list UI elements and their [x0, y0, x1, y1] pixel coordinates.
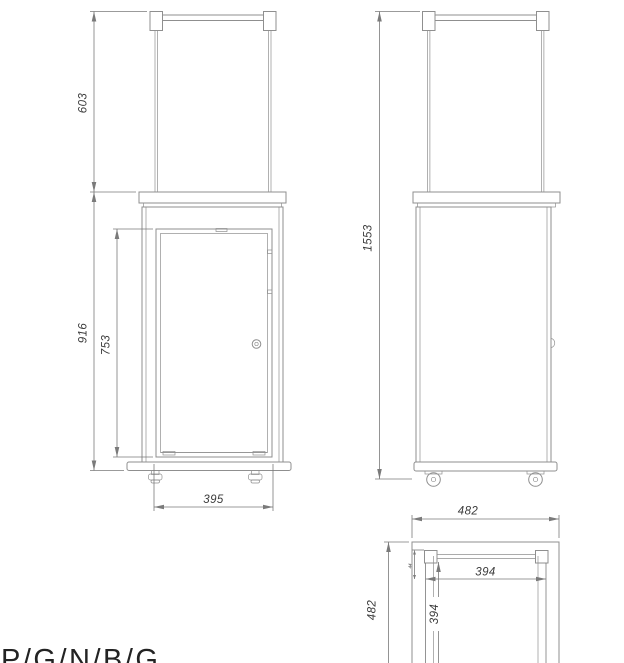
dim-top-overall-depth: 482: [367, 542, 410, 663]
top-view: 482 482 394 394 44: [367, 506, 560, 663]
front-door-hinge-mid: [268, 290, 273, 294]
front-foot-right: [249, 471, 263, 484]
side-handle-rod-right: [542, 31, 544, 193]
side-base-plate: [414, 462, 557, 471]
front-door-glass: [161, 234, 268, 453]
dim-front-door-width: 395: [154, 464, 273, 511]
front-door-hinge-top: [268, 250, 273, 254]
front-view: 603 916 753 395: [78, 12, 292, 512]
front-handle-cap-right: [264, 12, 277, 31]
front-handle-rod-right: [269, 31, 271, 193]
front-top-cap: [139, 192, 286, 203]
dim-top-handle-span-depth: 394: [429, 562, 444, 663]
dim-label-394-horizontal: 394: [475, 567, 495, 579]
side-view: 1553: [363, 12, 561, 487]
front-body: [142, 207, 283, 462]
dim-top-handle-span-width: 394: [426, 563, 547, 663]
side-handle-bar: [435, 15, 537, 21]
dim-front-door-height: 753: [101, 229, 154, 457]
side-handle-cap-left: [423, 12, 436, 31]
dim-label-603: 603: [78, 93, 90, 114]
dim-label-482-top: 482: [458, 506, 479, 518]
front-rail-clip-left: [163, 452, 175, 456]
side-caster-left: [425, 471, 442, 486]
dim-label-916: 916: [78, 323, 90, 344]
front-handle-bar: [163, 15, 264, 21]
dim-side-overall-height: 1553: [363, 12, 421, 480]
front-door-frame: [156, 229, 272, 457]
front-top-cap-lip: [144, 203, 282, 207]
side-top-cap: [413, 192, 560, 203]
side-top-cap-lip: [418, 203, 556, 207]
side-handle-cap-right: [537, 12, 550, 31]
dim-label-1553: 1553: [363, 224, 375, 251]
front-base-plate: [127, 462, 291, 471]
side-body: [416, 207, 551, 462]
dim-label-395: 395: [203, 494, 224, 506]
front-rail-clip-right: [253, 452, 265, 456]
technical-drawing: 603 916 753 395: [0, 0, 624, 663]
dim-label-corner-offset: 44: [408, 563, 413, 569]
front-door-lock: [252, 340, 261, 349]
dim-front-upper-height: 603: [78, 12, 148, 193]
product-code-label: P/G/N/B/G: [1, 644, 160, 663]
front-handle-rod-left: [155, 31, 157, 193]
top-handle-cap-left: [425, 551, 438, 564]
side-caster-right: [527, 471, 544, 486]
side-handle-rod-left: [428, 31, 430, 193]
front-foot-left: [149, 471, 163, 484]
dim-label-394-vertical: 394: [429, 604, 441, 624]
dim-label-482-left: 482: [367, 600, 379, 621]
dim-label-753: 753: [101, 335, 113, 356]
drawing-canvas: 603 916 753 395: [0, 0, 624, 663]
front-handle-cap-left: [150, 12, 163, 31]
top-handle-cap-right: [536, 551, 549, 564]
side-door-handle-bump: [551, 339, 555, 348]
dim-top-corner-offset: 44: [408, 550, 425, 579]
dim-top-overall-width: 482: [412, 506, 559, 539]
front-door-lock-pin: [255, 342, 258, 345]
